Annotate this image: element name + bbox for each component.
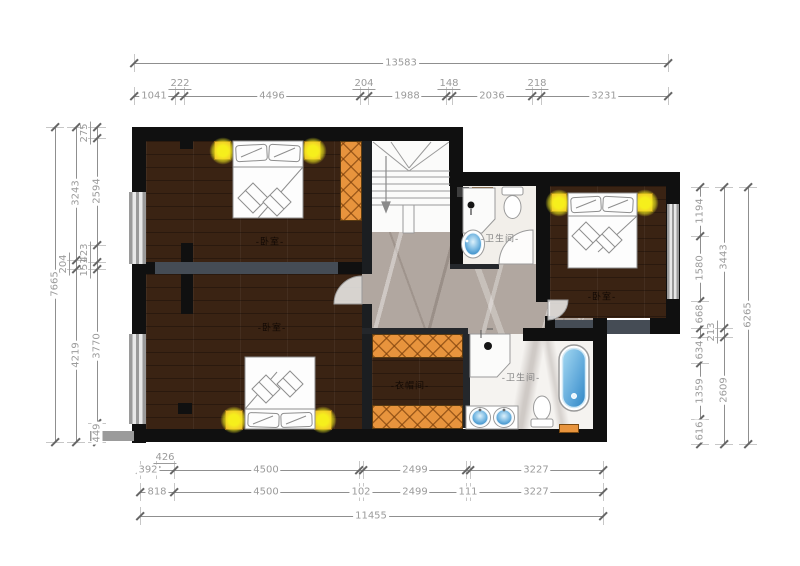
- nightstand-lamp: [314, 410, 332, 430]
- room-label-bedroom-top-left: -卧室-: [256, 235, 285, 248]
- dim-label: 1041: [139, 91, 168, 102]
- dim-label: 4500: [251, 487, 280, 498]
- dim-label: 1194: [695, 196, 706, 225]
- wall-cloak-bath-divider: [463, 334, 470, 428]
- dim-label: 111: [456, 487, 479, 498]
- dim-line-left-detail: [97, 127, 98, 442]
- room-label-bathroom-top: -卫生间-: [481, 232, 520, 245]
- nightstand-lamp: [551, 193, 567, 212]
- dim-label: 222: [168, 78, 191, 90]
- dim-label: 818: [145, 487, 168, 498]
- dim-label: 151: [79, 255, 91, 278]
- dim-label: 4219: [71, 340, 82, 369]
- bathroom-top-floor: [463, 186, 536, 264]
- room-label-bedroom-bottom-left: -卧室-: [258, 321, 287, 334]
- dim-label: 148: [437, 78, 460, 90]
- wall-bathroom-top-bottom: [450, 264, 499, 269]
- dim-label: 2609: [719, 375, 730, 404]
- dim-label: 2499: [400, 487, 429, 498]
- wall-mid-cap-left: [146, 262, 155, 274]
- dim-label: 204: [352, 78, 375, 90]
- dim-label: 3243: [71, 178, 82, 207]
- wall-step-corner: [650, 318, 680, 334]
- wall-mid-cap-right: [338, 262, 362, 274]
- wall-stair-bath: [450, 186, 463, 264]
- dim-label: 668: [695, 302, 706, 325]
- dim-label: 1359: [695, 376, 706, 405]
- column-stub-mid-upper: [181, 243, 193, 262]
- floor-plan-canvas: -卧室- -卧室- -卧室- -卫生间- -卫生间- -衣帽间- 1358310…: [0, 0, 800, 566]
- dim-label: 204: [58, 252, 70, 275]
- room-label-bathroom-bottom: -卫生间-: [502, 371, 541, 384]
- room-label-bedroom-right: -卧室-: [588, 290, 617, 303]
- dim-label: 616: [695, 419, 706, 442]
- dim-label: 2594: [92, 176, 103, 205]
- nightstand-lamp: [304, 141, 321, 160]
- dim-label: 449: [92, 421, 103, 444]
- wardrobe-cloakroom-bottom: [372, 405, 463, 429]
- dim-label: 213: [706, 320, 718, 343]
- wardrobe-bedroom-top-left: [340, 141, 362, 221]
- room-label-cloakroom: -衣帽间-: [391, 379, 430, 392]
- wall-spine-upper: [362, 141, 372, 274]
- wall-mid-horizontal: [146, 262, 362, 274]
- dim-label: 426: [153, 452, 176, 464]
- dim-label: 392: [136, 465, 159, 476]
- dim-label: 3443: [719, 242, 730, 271]
- wall-hall-bathroom-bottom: [523, 328, 593, 341]
- dim-label: 4496: [257, 91, 286, 102]
- dim-label: 2036: [477, 91, 506, 102]
- dim-line-left-mid: [76, 127, 77, 442]
- wall-bathtop-bedroom: [536, 172, 550, 302]
- dim-label: 3227: [521, 465, 550, 476]
- dim-label: 3231: [589, 91, 618, 102]
- dim-label: 102: [349, 487, 372, 498]
- dim-label: 634: [695, 338, 706, 361]
- column-stub-top: [180, 127, 193, 149]
- window-left-upper: [129, 192, 146, 264]
- wall-spine-lower: [362, 304, 372, 429]
- window-right: [667, 204, 679, 299]
- dim-label: 1988: [392, 91, 421, 102]
- dim-label: 3770: [92, 331, 103, 360]
- wall-bathroom-right: [593, 318, 607, 442]
- window-left-lower: [129, 334, 146, 424]
- nightstand-lamp: [637, 193, 653, 212]
- shelf-bathroom-top: [472, 187, 493, 196]
- dim-label: 11455: [353, 511, 389, 522]
- cabinet-bathroom-top: [457, 187, 469, 197]
- nightstand-lamp: [214, 141, 231, 160]
- dim-label: 1580: [695, 253, 706, 282]
- column-stub-bottom: [178, 403, 192, 414]
- mat-bathroom-bottom: [559, 424, 579, 433]
- dim-label: 3227: [521, 487, 550, 498]
- staircase-floor: [372, 141, 450, 232]
- dim-label: 2499: [400, 465, 429, 476]
- dim-line-right-mid: [724, 187, 725, 444]
- dim-label: 6265: [743, 300, 754, 329]
- dim-label: 4500: [251, 465, 280, 476]
- wall-top-right: [449, 172, 680, 186]
- column-stub-mid-lower: [181, 274, 193, 314]
- dim-label: 218: [525, 78, 548, 90]
- nightstand-lamp: [225, 410, 243, 430]
- bedroom-top-left-floor: [146, 141, 362, 262]
- dim-label: 275: [79, 121, 91, 144]
- wall-bottom: [132, 429, 607, 442]
- wardrobe-cloakroom-top: [372, 334, 463, 358]
- dim-label: 13583: [383, 58, 419, 69]
